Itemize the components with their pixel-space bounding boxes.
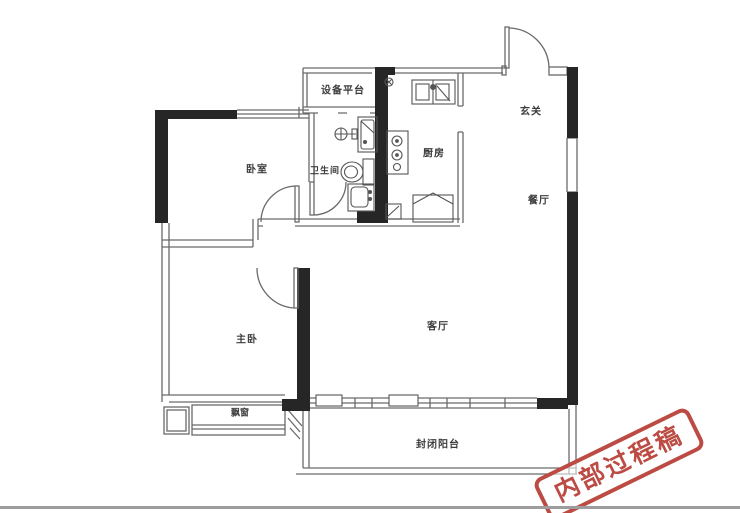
thin-walls-group (162, 66, 577, 474)
doors-group (257, 27, 549, 308)
toilet (341, 159, 374, 185)
kitchen-cabinet (386, 204, 401, 219)
room-label-equipment-platform: 设备平台 (321, 82, 365, 97)
room-label-balcony: 封闭阳台 (416, 436, 460, 451)
room-label-bay-window: 飘窗 (231, 406, 249, 419)
room-label-dining: 餐厅 (528, 192, 550, 207)
window-sill-blocks (316, 395, 418, 406)
photo-bottom-edge (0, 506, 740, 509)
black-walls-group (155, 67, 578, 411)
room-label-living-room: 客厅 (427, 318, 449, 333)
room-label-bathroom: 卫生间 (310, 164, 340, 177)
room-label-entry: 玄关 (520, 103, 542, 118)
floor-plan: 设备平台 玄关 卧室 卫生间 厨房 餐厅 主卧 客厅 飘窗 封闭阳台 内部过程稿 (0, 0, 740, 513)
kitchen-sink (412, 80, 455, 104)
washing-machine (358, 117, 377, 152)
room-label-master-bedroom: 主卧 (236, 331, 258, 346)
room-label-bedroom: 卧室 (246, 161, 268, 176)
vanity-sink (348, 184, 374, 211)
refrigerator (413, 193, 453, 222)
room-label-kitchen: 厨房 (423, 145, 445, 160)
stove (387, 131, 408, 174)
shower-icon (335, 128, 357, 140)
